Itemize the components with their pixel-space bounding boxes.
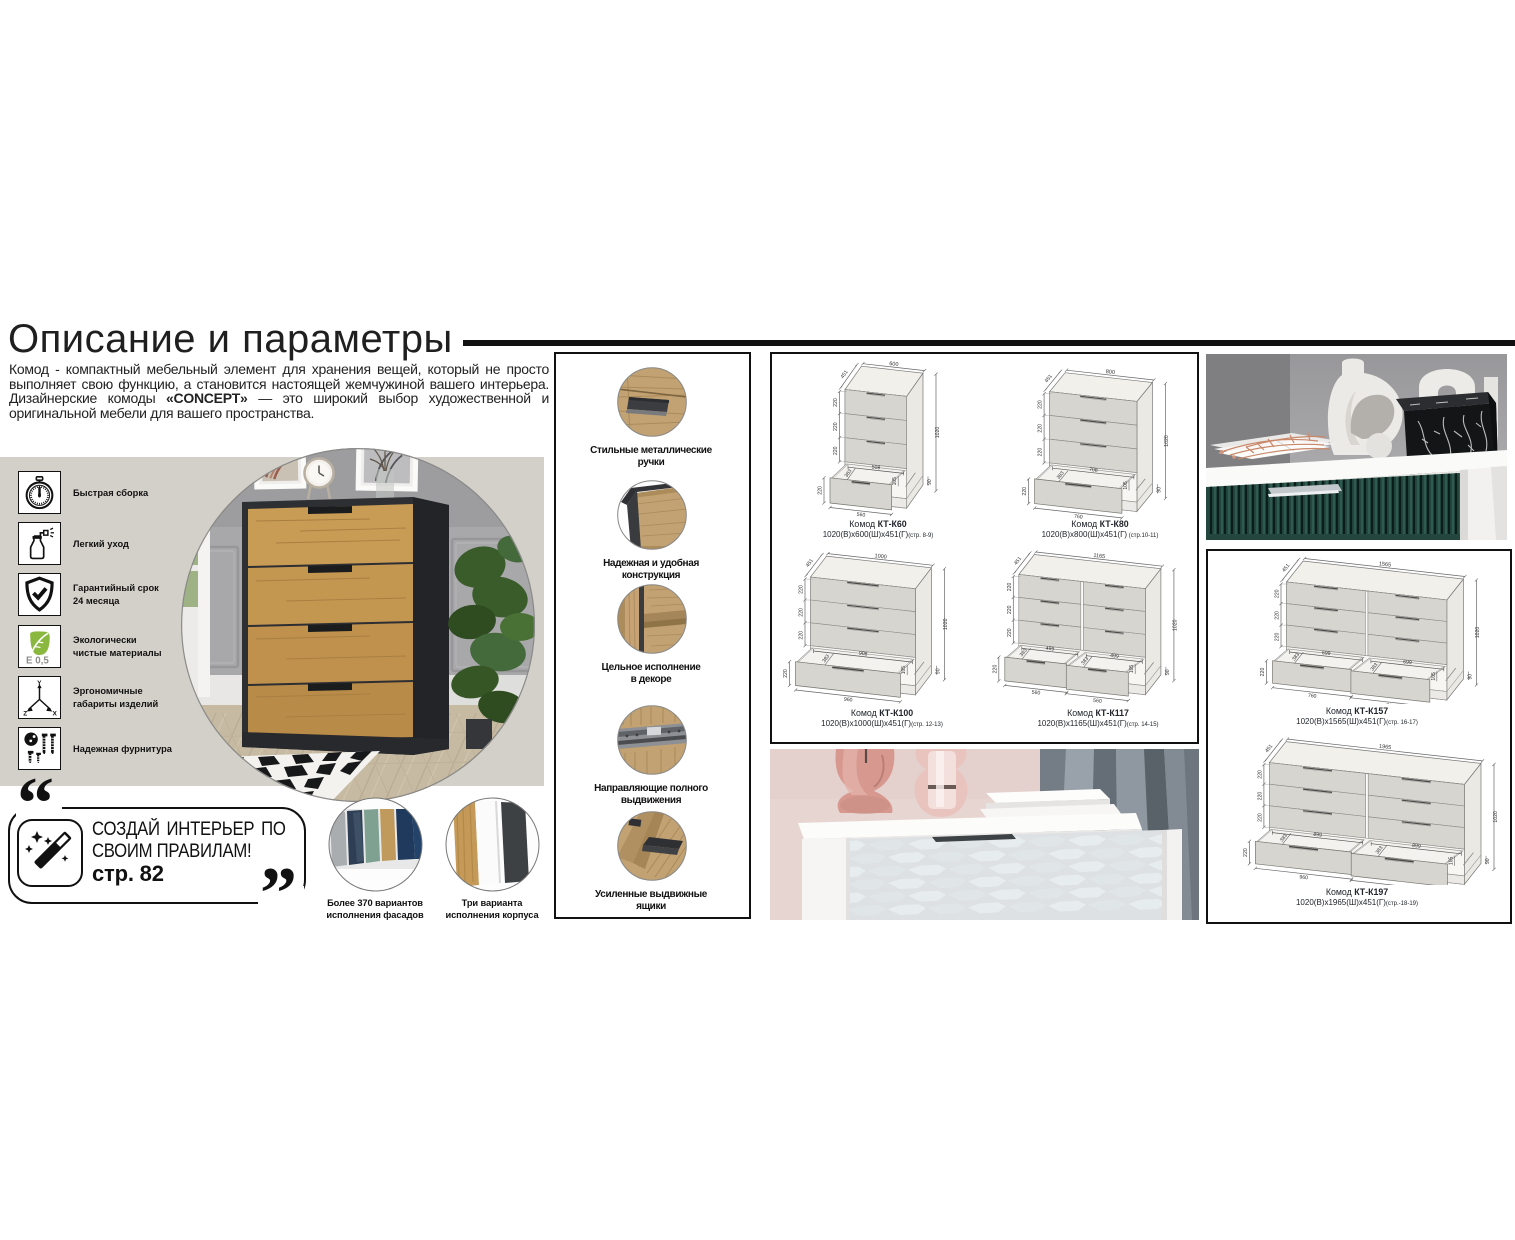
svg-text:760: 760 — [1307, 693, 1316, 700]
svg-text:220: 220 — [1257, 813, 1263, 822]
svg-text:220: 220 — [1007, 605, 1013, 614]
svg-text:220: 220 — [1257, 770, 1263, 779]
svg-text:220: 220 — [833, 446, 839, 455]
svg-text:708: 708 — [1089, 467, 1098, 474]
svg-text:451: 451 — [1013, 556, 1023, 567]
svg-text:90: 90 — [1485, 858, 1491, 864]
svg-text:508: 508 — [871, 464, 880, 471]
svg-text:1020: 1020 — [1173, 619, 1179, 631]
svg-text:699: 699 — [1403, 659, 1412, 666]
svg-text:499: 499 — [1045, 646, 1054, 653]
svg-text:105: 105 — [892, 477, 898, 486]
svg-text:90: 90 — [1156, 487, 1162, 493]
svg-text:90: 90 — [927, 479, 933, 485]
svg-text:451: 451 — [840, 369, 850, 380]
svg-text:105: 105 — [1123, 481, 1129, 490]
svg-text:220: 220 — [799, 608, 805, 617]
svg-text:1020: 1020 — [943, 618, 949, 630]
svg-text:220: 220 — [1275, 589, 1281, 598]
svg-text:Z: Z — [23, 711, 27, 718]
svg-text:220: 220 — [1038, 400, 1044, 409]
svg-text:220: 220 — [818, 486, 824, 495]
svg-text:220: 220 — [992, 665, 998, 674]
svg-text:1000: 1000 — [874, 553, 887, 560]
svg-text:105: 105 — [901, 666, 907, 675]
svg-text:220: 220 — [1007, 582, 1013, 591]
svg-text:220: 220 — [799, 585, 805, 594]
svg-text:899: 899 — [1412, 843, 1421, 850]
svg-text:560: 560 — [1031, 690, 1040, 697]
svg-text:220: 220 — [1275, 611, 1281, 620]
svg-text:220: 220 — [1260, 668, 1266, 677]
svg-text:1020: 1020 — [1493, 811, 1499, 823]
svg-text:220: 220 — [833, 422, 839, 431]
svg-text:220: 220 — [1038, 448, 1044, 457]
svg-text:105: 105 — [1431, 672, 1437, 681]
svg-text:220: 220 — [783, 669, 789, 678]
svg-text:451: 451 — [1044, 374, 1054, 385]
svg-text:560: 560 — [856, 512, 865, 519]
svg-text:451: 451 — [1264, 743, 1274, 754]
svg-text:X: X — [53, 711, 58, 718]
svg-text:220: 220 — [833, 398, 839, 407]
svg-text:220: 220 — [1243, 848, 1249, 857]
svg-text:699: 699 — [1321, 650, 1330, 657]
svg-text:899: 899 — [1313, 832, 1322, 839]
svg-text:105: 105 — [1129, 665, 1135, 674]
svg-text:Y: Y — [37, 680, 42, 687]
svg-text:220: 220 — [1257, 792, 1263, 801]
svg-text:760: 760 — [1386, 703, 1395, 704]
svg-text:220: 220 — [1007, 628, 1013, 637]
svg-text:560: 560 — [1093, 698, 1102, 705]
svg-text:90: 90 — [935, 668, 941, 674]
svg-text:90: 90 — [1165, 669, 1171, 675]
svg-text:220: 220 — [799, 631, 805, 640]
svg-text:1020: 1020 — [935, 427, 941, 439]
svg-text:960: 960 — [1299, 874, 1308, 881]
svg-text:800: 800 — [1105, 369, 1115, 376]
svg-text:1020: 1020 — [1475, 627, 1481, 639]
svg-text:1020: 1020 — [1164, 435, 1170, 447]
svg-text:908: 908 — [858, 651, 867, 658]
svg-text:499: 499 — [1110, 653, 1119, 660]
svg-text:220: 220 — [1275, 632, 1281, 641]
svg-text:90: 90 — [1467, 674, 1473, 680]
svg-text:451: 451 — [805, 558, 815, 569]
svg-text:1965: 1965 — [1379, 744, 1392, 751]
svg-text:451: 451 — [1281, 563, 1291, 574]
svg-text:1565: 1565 — [1378, 561, 1391, 568]
svg-text:220: 220 — [1038, 424, 1044, 433]
svg-text:960: 960 — [843, 697, 852, 704]
svg-text:E 0,5: E 0,5 — [26, 655, 49, 666]
svg-text:600: 600 — [889, 361, 899, 368]
svg-text:105: 105 — [1448, 857, 1454, 866]
svg-text:1165: 1165 — [1093, 553, 1105, 560]
svg-text:220: 220 — [1022, 487, 1028, 496]
